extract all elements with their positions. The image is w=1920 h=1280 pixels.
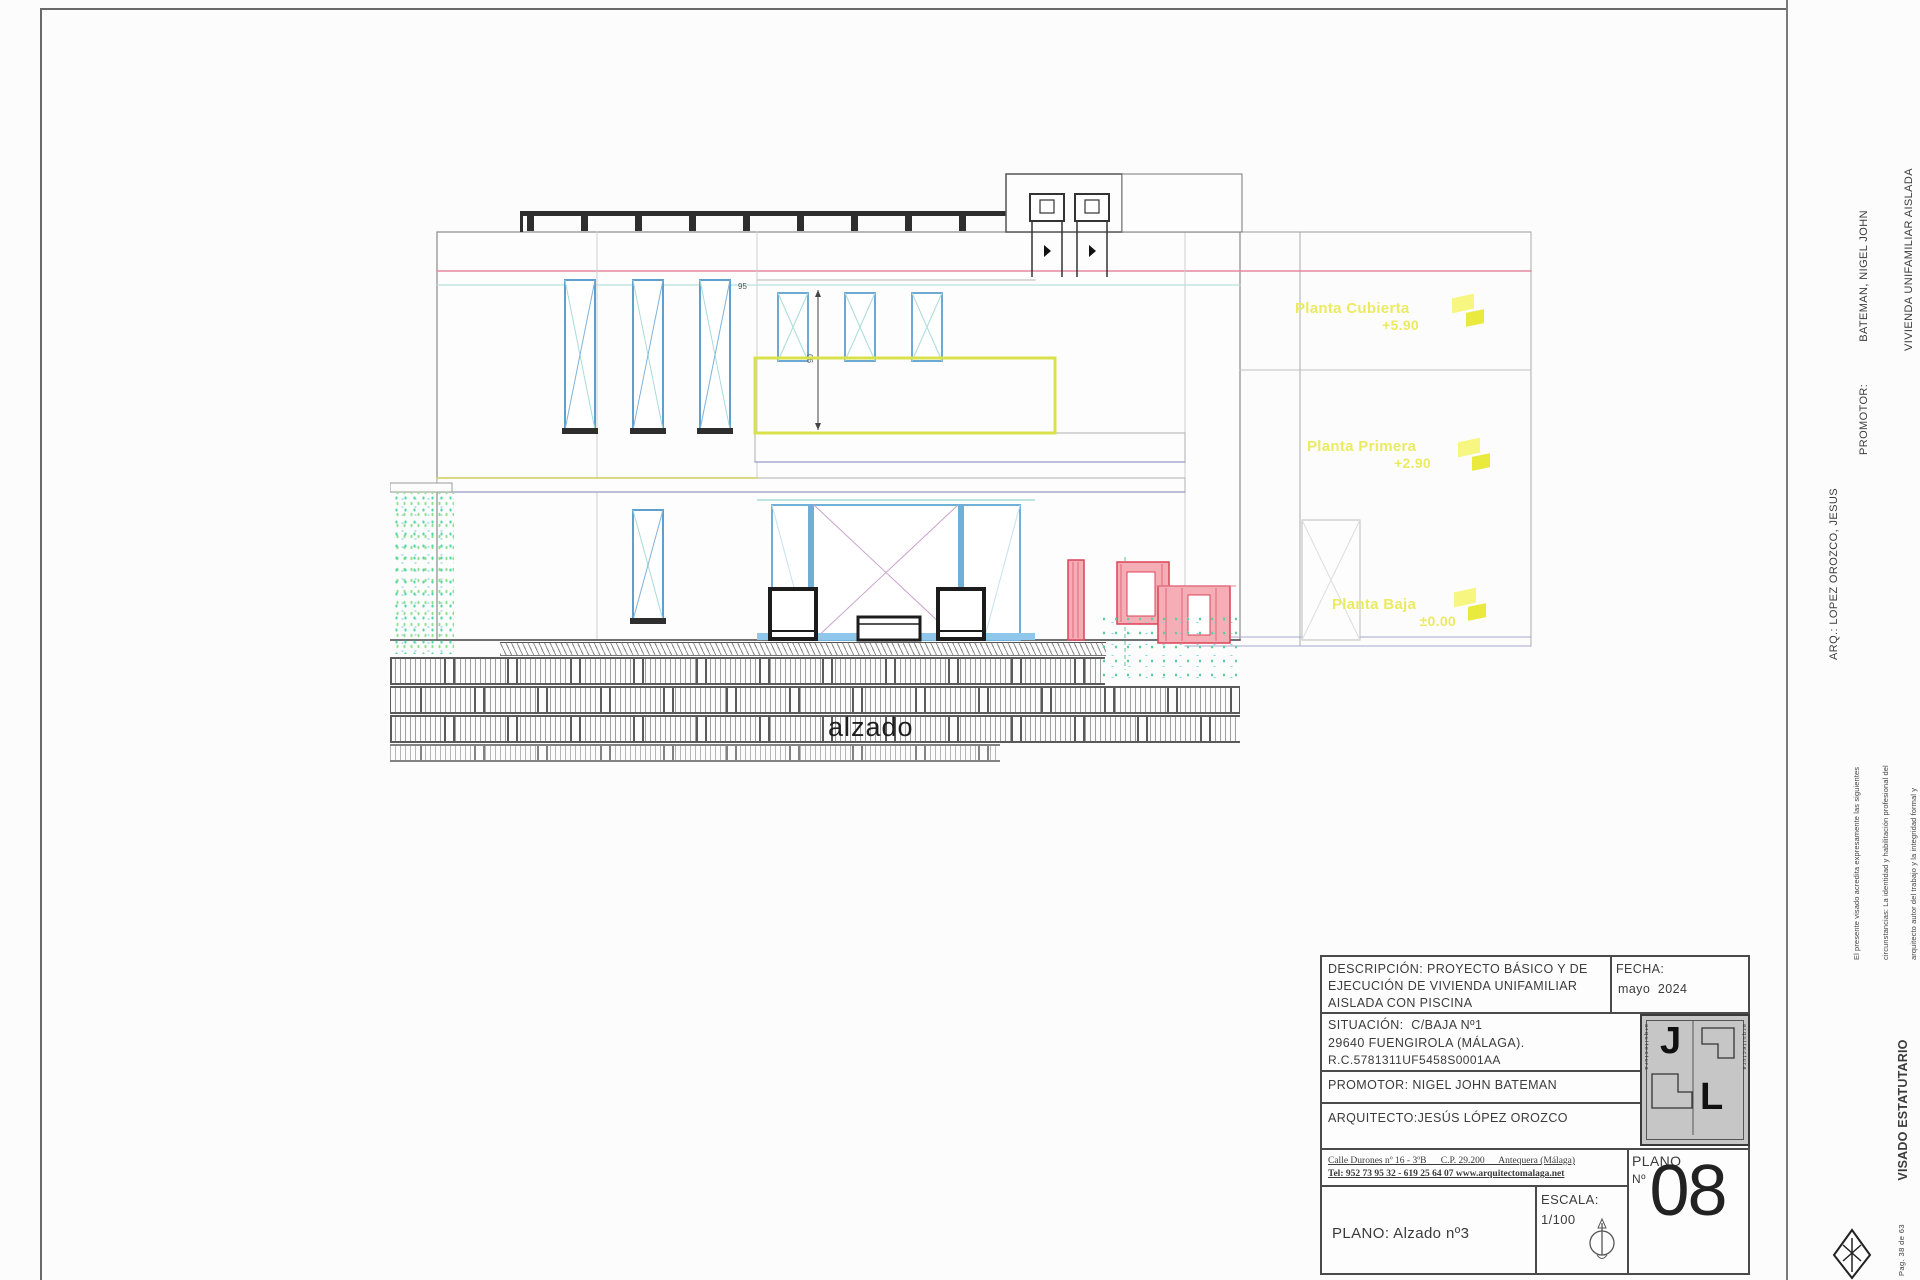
margin-promotor-line2: VIVIENDA UNIFAMILIAR AISLADA bbox=[1902, 168, 1917, 455]
fecha-label: FECHA: bbox=[1616, 961, 1664, 978]
logo-side-text: arquitectura bbox=[1643, 1024, 1649, 1071]
paving-edge-hatch bbox=[500, 642, 1106, 656]
visado-note: El presente visado acredita expresamente… bbox=[1833, 765, 1920, 960]
paving-brick-row bbox=[390, 715, 1240, 743]
situacion-line2: 29640 FUENGIROLA (MÁLAGA). bbox=[1328, 1035, 1525, 1052]
arquitecto-cell: ARQUITECTO:JESÚS LÓPEZ OROZCO bbox=[1328, 1110, 1568, 1127]
drawing-caption: alzado bbox=[828, 712, 914, 743]
page-ref: Pag. 38 de 63 bbox=[1894, 1224, 1909, 1276]
margin-promotor-block: PROMOTOR:BATEMAN, NIGEL JOHN VIVIENDA UN… bbox=[1827, 168, 1920, 455]
descripcion-cell: DESCRIPCIÓN: PROYECTO BÁSICO Y DE EJECUC… bbox=[1328, 961, 1588, 1012]
dim-width-label: 95 bbox=[738, 282, 747, 291]
margin-architect: ARQ.: LOPEZ OROZCO, JESUS bbox=[1827, 488, 1842, 660]
paving-brick-row bbox=[390, 686, 1240, 714]
logo-step-lines bbox=[1642, 1016, 1744, 1140]
pool-water-speckles bbox=[1098, 612, 1240, 678]
level-flag-icon bbox=[1446, 590, 1490, 626]
sheet-margin-separator bbox=[1786, 0, 1788, 1280]
vegetation-speckles bbox=[392, 492, 454, 654]
sheet-border-top bbox=[40, 8, 1787, 10]
title-block: DESCRIPCIÓN: PROYECTO BÁSICO Y DE EJECUC… bbox=[1320, 955, 1750, 1275]
visado-stamp-text: VISADO ESTATUTARIO 26/06/2024 - Nº Expte… bbox=[1866, 1005, 1920, 1215]
colegio-stamp-icon bbox=[1832, 1228, 1872, 1280]
sheet-border-left bbox=[40, 8, 42, 1280]
level-name: Planta Cubierta bbox=[1295, 300, 1445, 317]
fecha-value: mayo 2024 bbox=[1618, 981, 1687, 998]
architect-logo: J L arquitectura arquitectura bbox=[1640, 1014, 1750, 1146]
margin-promotor-name: BATEMAN, NIGEL JOHN bbox=[1858, 210, 1870, 342]
address-line2: Tel: 952 73 95 32 - 619 25 64 07 www.arq… bbox=[1328, 1166, 1564, 1183]
level-name: Planta Primera bbox=[1307, 438, 1457, 455]
paving-brick-row bbox=[390, 657, 1105, 685]
level-flag-icon bbox=[1450, 440, 1494, 476]
margin-promotor-label: PROMOTOR: bbox=[1858, 384, 1870, 455]
level-value: +2.90 bbox=[1307, 455, 1457, 471]
drawing-sheet: 90 95 bbox=[0, 0, 1920, 1280]
level-label-cubierta: Planta Cubierta +5.90 bbox=[1295, 300, 1445, 333]
north-arrow-icon bbox=[1584, 1215, 1620, 1265]
escala-label: ESCALA: bbox=[1541, 1191, 1599, 1208]
situacion-line1: SITUACIÓN: C/BAJA Nº1 bbox=[1328, 1017, 1482, 1034]
situacion-line3: R.C.5781311UF5458S0001AA bbox=[1328, 1052, 1501, 1069]
logo-side-text: arquitectura bbox=[1741, 1024, 1747, 1071]
upper-windows bbox=[562, 280, 733, 434]
visado-title: VISADO ESTATUTARIO bbox=[1896, 1005, 1911, 1215]
level-flag-icon bbox=[1444, 296, 1488, 332]
sheet-number: 08 bbox=[1627, 1183, 1748, 1200]
promotor-cell: PROMOTOR: NIGEL JOHN BATEMAN bbox=[1328, 1077, 1557, 1094]
plano-title: PLANO: Alzado nº3 bbox=[1332, 1225, 1469, 1242]
paving-brick-row bbox=[390, 744, 1000, 762]
level-label-primera: Planta Primera +2.90 bbox=[1307, 438, 1457, 471]
escala-value: 1/100 bbox=[1541, 1211, 1576, 1228]
level-value: +5.90 bbox=[1295, 317, 1445, 333]
